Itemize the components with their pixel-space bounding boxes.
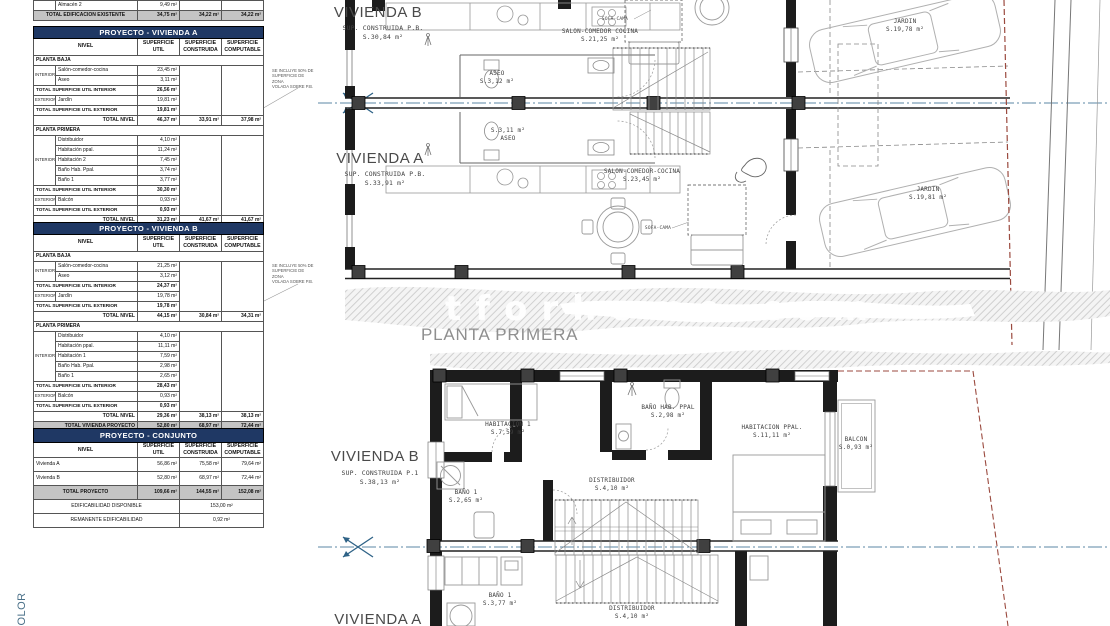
table-cell: 24,37 m² xyxy=(138,282,180,292)
table-cell: TOTAL SUPERFICIE UTIL INTERIOR xyxy=(34,86,138,96)
table-cell: 0,93 m² xyxy=(138,196,180,206)
table-cell: PLANTA PRIMERA xyxy=(34,126,264,136)
table-cell: NIVEL xyxy=(34,39,138,56)
table-cell: 0,93 m² xyxy=(138,392,180,402)
table-cell: INTERIOR xyxy=(34,136,56,186)
table-cell: 4,10 m² xyxy=(138,332,180,342)
table-cell: Almacén 2 xyxy=(56,1,138,11)
table-proyecto-vivienda-b: PROYECTO - VIVIENDA BNIVELSUPERFICIE UTI… xyxy=(33,222,264,432)
table-cell: TOTAL SUPERFICIE UTIL INTERIOR xyxy=(34,282,138,292)
table-cell: 3,11 m² xyxy=(138,76,180,86)
table-cell xyxy=(180,262,222,312)
data-table: PROYECTO - VIVIENDA ANIVELSUPERFICIE UTI… xyxy=(33,26,264,236)
table-cell: 19,81 m² xyxy=(138,106,180,116)
table-cell: TOTAL SUPERFICIE UTIL EXTERIOR xyxy=(34,206,138,216)
table-cell: 0,92 m² xyxy=(180,514,264,528)
table-cell: TOTAL NIVEL xyxy=(34,412,138,422)
table-cell: SUPERFICIE COMPUTABLE xyxy=(222,235,264,252)
table-cell: 153,00 m² xyxy=(180,500,264,514)
table-cell: Jardín xyxy=(56,96,138,106)
table-cell: PROYECTO - VIVIENDA B xyxy=(34,223,264,235)
table-cell: SUPERFICIE UTIL xyxy=(138,235,180,252)
table-cell: NIVEL xyxy=(34,443,138,458)
table-cell: Habitación 1 xyxy=(56,352,138,362)
table-cell: PLANTA PRIMERA xyxy=(34,322,264,332)
table-cell: Aseo xyxy=(56,76,138,86)
table-cell: PROYECTO - VIVIENDA A xyxy=(34,27,264,39)
table-cell: Balcón xyxy=(56,196,138,206)
table-cell xyxy=(180,66,222,116)
table-cell: SUPERFICIE COMPUTABLE xyxy=(222,39,264,56)
table-cell: INTERIOR xyxy=(34,332,56,382)
table-cell: 44,15 m² xyxy=(138,312,180,322)
table-cell: TOTAL SUPERFICIE UTIL EXTERIOR xyxy=(34,106,138,116)
table-cell: 11,24 m² xyxy=(138,146,180,156)
table-cell: 0,93 m² xyxy=(138,402,180,412)
table-cell: PLANTA BAJA xyxy=(34,252,264,262)
watermark: tforhome.com xyxy=(445,289,882,329)
architectural-plan-page: VIVIENDA BSUP. CONSTRUIDA P.B. S.30,84 m… xyxy=(0,0,1110,626)
table-cell: 152,08 m² xyxy=(222,486,264,500)
table-cell: Habitación ppal. xyxy=(56,146,138,156)
table-cell: 79,64 m² xyxy=(222,458,264,472)
table-cell: Baño Hab. Ppal. xyxy=(56,362,138,372)
table-cell: 30,84 m² xyxy=(180,312,222,322)
table-cell: Vivienda A xyxy=(34,458,138,472)
table-cell: TOTAL EDIFICACION EXISTENTE xyxy=(34,11,138,21)
table-cell: 144,55 m² xyxy=(180,486,222,500)
table-cell: EXTERIOR xyxy=(34,96,56,106)
table-cell: Vivienda B xyxy=(34,472,138,486)
table-cell: SUPERFICIE CONSTRUIDA xyxy=(180,39,222,56)
table-cell: TOTAL SUPERFICIE UTIL EXTERIOR xyxy=(34,302,138,312)
planta-primera-label: PLANTA PRIMERA xyxy=(421,325,578,345)
table-cell: Distribuidor xyxy=(56,136,138,146)
table-cell: 11,11 m² xyxy=(138,342,180,352)
data-table: PROYECTO - CONJUNTONIVELSUPERFICIE UTILS… xyxy=(33,428,264,528)
table-cell: SUPERFICIE CONSTRUIDA xyxy=(180,443,222,458)
table-cell: Salón-comedor-cocina xyxy=(56,262,138,272)
table-cell: TOTAL SUPERFICIE UTIL INTERIOR xyxy=(34,382,138,392)
table-cell: 109,66 m² xyxy=(138,486,180,500)
table-edificacion-existente: Almacén 29,49 m²TOTAL EDIFICACION EXISTE… xyxy=(33,0,264,21)
table-cell: 68,97 m² xyxy=(180,472,222,486)
table-cell xyxy=(34,1,56,11)
table-cell xyxy=(222,262,264,312)
table-cell: SUPERFICIE CONSTRUIDA xyxy=(180,235,222,252)
table-cell: 19,78 m² xyxy=(138,292,180,302)
table-cell: SUPERFICIE UTIL xyxy=(138,443,180,458)
table-cell: 34,22 m² xyxy=(222,11,264,21)
table-cell: 34,31 m² xyxy=(222,312,264,322)
table-cell: 3,77 m² xyxy=(138,176,180,186)
table-cell: Jardín xyxy=(56,292,138,302)
table-cell: 30,30 m² xyxy=(138,186,180,196)
table-cell: 72,44 m² xyxy=(222,472,264,486)
table-cell xyxy=(180,136,222,216)
table-cell: EXTERIOR xyxy=(34,292,56,302)
table-cell: Aseo xyxy=(56,272,138,282)
table-cell: 4,10 m² xyxy=(138,136,180,146)
table-cell: PROYECTO - CONJUNTO xyxy=(34,429,264,443)
data-table: Almacén 29,49 m²TOTAL EDIFICACION EXISTE… xyxy=(33,0,264,21)
table-cell: 34,22 m² xyxy=(180,11,222,21)
table-cell: Baño Hab. Ppal. xyxy=(56,166,138,176)
table-cell: 3,74 m² xyxy=(138,166,180,176)
color-vertical-label: COLOR xyxy=(16,592,28,626)
table-cell: TOTAL NIVEL xyxy=(34,116,138,126)
table-cell: 2,65 m² xyxy=(138,372,180,382)
table-cell xyxy=(180,1,222,11)
table-cell: Baño 1 xyxy=(56,372,138,382)
table-cell: Salón-comedor-cocina xyxy=(56,66,138,76)
table-cell: INTERIOR xyxy=(34,66,56,86)
table-cell: TOTAL PROYECTO xyxy=(34,486,138,500)
table-cell: 19,81 m² xyxy=(138,96,180,106)
table-cell: 38,13 m² xyxy=(222,412,264,422)
table-cell: 2,98 m² xyxy=(138,362,180,372)
table-cell: 56,86 m² xyxy=(138,458,180,472)
table-cell xyxy=(222,66,264,116)
volada-note-b: SE INCLUYE 50% DE SUPERFICIE DE ZONA VOL… xyxy=(272,263,316,284)
table-cell: PLANTA BAJA xyxy=(34,56,264,66)
table-cell: NIVEL xyxy=(34,235,138,252)
table-proyecto-vivienda-a: PROYECTO - VIVIENDA ANIVELSUPERFICIE UTI… xyxy=(33,26,264,236)
table-cell: 52,80 m² xyxy=(138,472,180,486)
table-cell: 46,37 m² xyxy=(138,116,180,126)
table-cell: TOTAL SUPERFICIE UTIL EXTERIOR xyxy=(34,402,138,412)
table-cell: EXTERIOR xyxy=(34,392,56,402)
table-cell: 3,12 m² xyxy=(138,272,180,282)
volada-note-a: SE INCLUYE 50% DE SUPERFICIE DE ZONA VOL… xyxy=(272,68,316,89)
table-cell: 29,36 m² xyxy=(138,412,180,422)
table-cell: REMANENTE EDIFICABILIDAD xyxy=(34,514,180,528)
table-cell: TOTAL NIVEL xyxy=(34,312,138,322)
table-cell: 21,25 m² xyxy=(138,262,180,272)
table-proyecto-conjunto: PROYECTO - CONJUNTONIVELSUPERFICIE UTILS… xyxy=(33,428,264,528)
table-cell: Balcón xyxy=(56,392,138,402)
data-table: PROYECTO - VIVIENDA BNIVELSUPERFICIE UTI… xyxy=(33,222,264,432)
table-cell: Habitación 2 xyxy=(56,156,138,166)
table-cell: 37,98 m² xyxy=(222,116,264,126)
table-cell: Baño 1 xyxy=(56,176,138,186)
table-cell: EXTERIOR xyxy=(34,196,56,206)
table-cell: Habitación ppal. xyxy=(56,342,138,352)
table-cell: 33,91 m² xyxy=(180,116,222,126)
table-cell: 34,75 m² xyxy=(138,11,180,21)
table-cell: 28,43 m² xyxy=(138,382,180,392)
table-cell: SUPERFICIE UTIL xyxy=(138,39,180,56)
table-cell: 9,49 m² xyxy=(138,1,180,11)
table-cell xyxy=(222,1,264,11)
table-cell: 23,45 m² xyxy=(138,66,180,76)
table-cell: 26,56 m² xyxy=(138,86,180,96)
table-cell: TOTAL SUPERFICIE UTIL INTERIOR xyxy=(34,186,138,196)
table-cell: 38,13 m² xyxy=(180,412,222,422)
table-cell: 7,45 m² xyxy=(138,156,180,166)
table-cell xyxy=(222,332,264,412)
table-cell: INTERIOR xyxy=(34,262,56,282)
table-cell: SUPERFICIE COMPUTABLE xyxy=(222,443,264,458)
table-cell: 75,58 m² xyxy=(180,458,222,472)
table-cell: Distribuidor xyxy=(56,332,138,342)
table-cell xyxy=(222,136,264,216)
table-cell: 0,93 m² xyxy=(138,206,180,216)
table-cell: 7,59 m² xyxy=(138,352,180,362)
table-cell: EDIFICABILIDAD DISPONIBLE xyxy=(34,500,180,514)
table-cell xyxy=(180,332,222,412)
table-cell: 19,78 m² xyxy=(138,302,180,312)
